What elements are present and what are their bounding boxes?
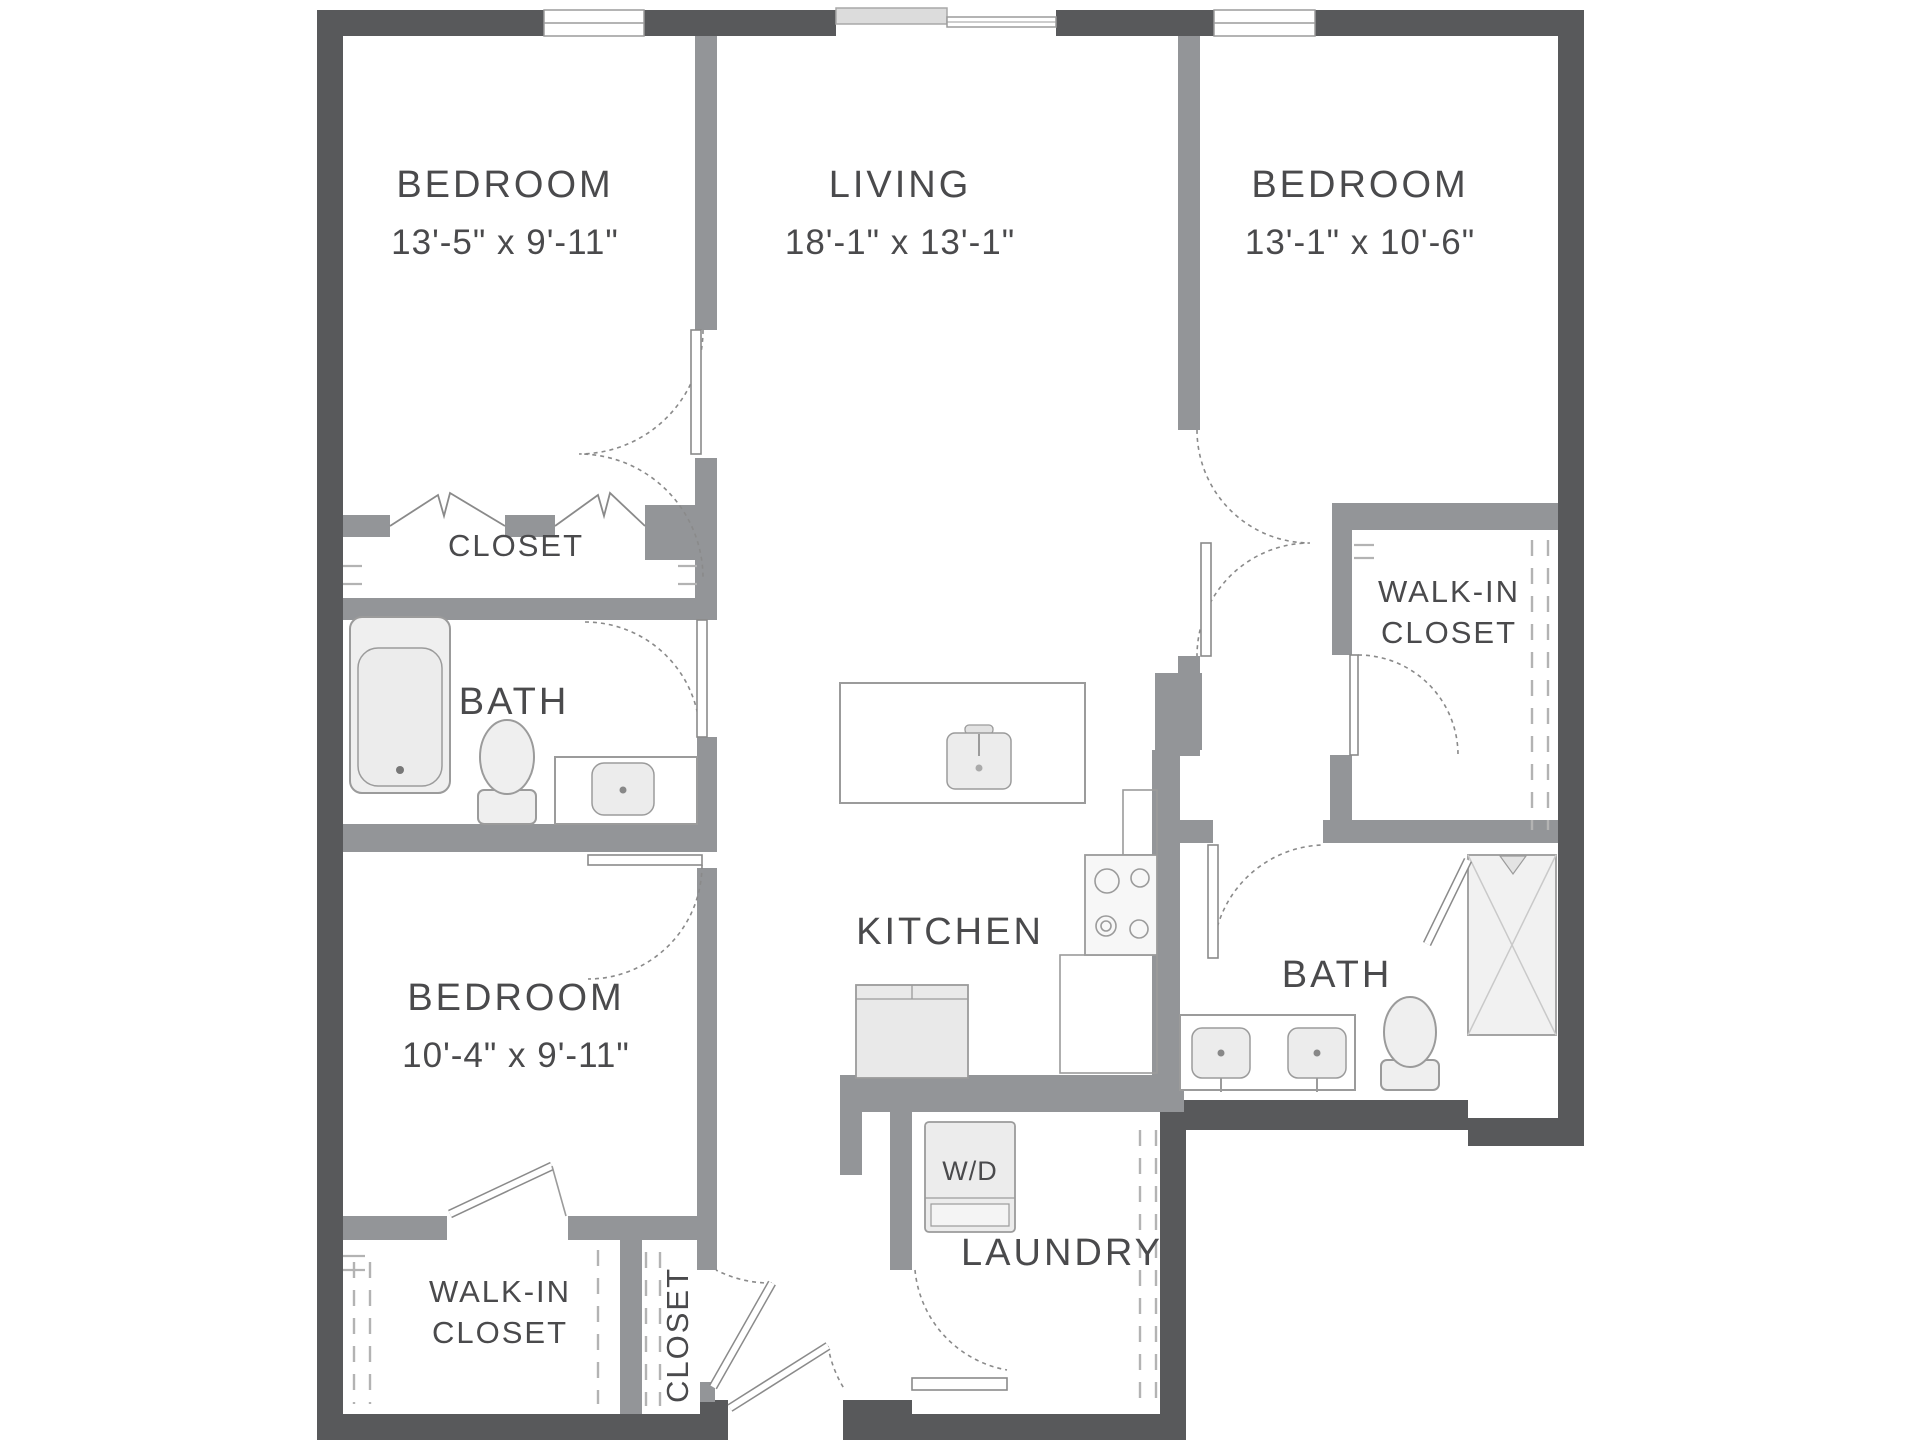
wd-label: W/D xyxy=(942,1156,997,1186)
bathtub-icon xyxy=(350,617,450,793)
bedroom-top-right-dims: 13'-1" x 10'-6" xyxy=(1245,223,1475,262)
laundry-label: LAUNDRY xyxy=(961,1232,1163,1274)
bedroom-bottom-dims: 10'-4" x 9'-11" xyxy=(402,1036,630,1075)
doors xyxy=(390,330,1458,1408)
walkin-right-label-line1: WALK-IN xyxy=(1378,574,1520,609)
door-walkin-closet-right-icon xyxy=(1350,655,1458,755)
vanity-sink-left-icon xyxy=(555,757,697,824)
window-living-icon xyxy=(836,8,1056,27)
bedroom-bottom-label: BEDROOM xyxy=(407,977,624,1019)
door-bath-right-icon xyxy=(1208,845,1323,958)
bedroom-top-right-label: BEDROOM xyxy=(1251,164,1468,206)
bath-right-label: BATH xyxy=(1282,954,1393,996)
window-bedroom-left-icon xyxy=(544,10,644,36)
window-bedroom-right-icon xyxy=(1214,10,1315,36)
floor-plan-page: W/D BEDROOM 13'-5" x 9'-11" LIVING xyxy=(0,0,1920,1447)
living-dims: 18'-1" x 13'-1" xyxy=(785,223,1015,262)
bedroom-top-left-dims: 13'-5" x 9'-11" xyxy=(391,223,619,262)
washer-dryer-icon: W/D xyxy=(925,1122,1015,1232)
living-label: LIVING xyxy=(829,164,972,206)
door-walkin-closet-left-icon xyxy=(450,1166,566,1216)
door-bedroom-bottom-icon xyxy=(588,855,702,979)
door-laundry-icon xyxy=(912,1270,1007,1390)
kitchen-label: KITCHEN xyxy=(856,911,1044,953)
stove-icon xyxy=(1085,855,1157,955)
door-bedroom-top-right-icon xyxy=(1197,430,1310,656)
closet-top-label: CLOSET xyxy=(448,528,584,563)
walkin-right-label-line2: CLOSET xyxy=(1381,615,1517,650)
kitchen-sink-icon xyxy=(947,725,1011,789)
shower-icon xyxy=(1427,855,1556,1035)
floor-plan: W/D BEDROOM 13'-5" x 9'-11" LIVING xyxy=(0,0,1920,1447)
kitchen-island xyxy=(840,683,1085,803)
door-entry-icon xyxy=(730,1346,845,1408)
closet-entry-label: CLOSET xyxy=(660,1267,695,1403)
bedroom-top-left-label: BEDROOM xyxy=(396,164,613,206)
vanity-double-sink-right-icon xyxy=(1180,1015,1355,1092)
toilet-left-icon xyxy=(478,720,536,824)
door-entry-closet-icon xyxy=(713,1270,772,1387)
bath-left-label: BATH xyxy=(459,681,570,723)
fridge-icon xyxy=(856,985,968,1078)
toilet-right-icon xyxy=(1381,997,1439,1090)
walkin-left-label-line1: WALK-IN xyxy=(429,1274,571,1309)
walkin-left-label-line2: CLOSET xyxy=(432,1315,568,1350)
door-bath-left-icon xyxy=(585,620,707,737)
